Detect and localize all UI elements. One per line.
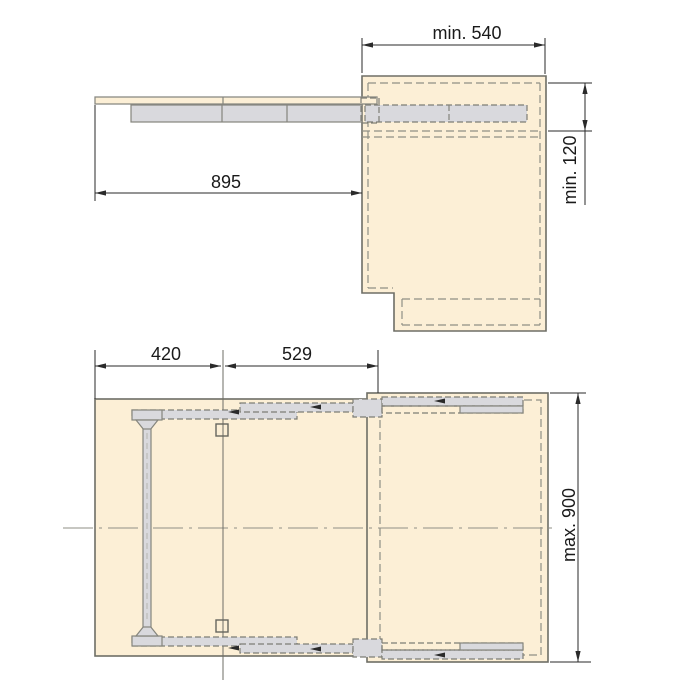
dimension-label-max-extension: max. 900 [559, 488, 579, 562]
cabinet-rail-top [382, 397, 523, 406]
drawing-canvas: min. 540 895 min. 120 [0, 0, 700, 700]
dimension-label-top-clearance: min. 120 [560, 135, 580, 204]
leg-foot-plate-top [132, 410, 162, 420]
slide-connector-top [353, 399, 382, 417]
dimension-max-extension: max. 900 [550, 393, 591, 662]
dimension-top-clearance: min. 120 [548, 83, 592, 205]
dimension-cabinet-depth: min. 540 [362, 23, 545, 74]
dimension-label-leg-offset: 420 [151, 344, 181, 364]
slide-connector-bottom [353, 639, 382, 657]
dimension-leg-offset: 420 [95, 344, 221, 399]
side-view: min. 540 895 min. 120 [95, 23, 592, 331]
slide-mid-bottom [240, 644, 353, 653]
dimension-label-cabinet-depth: min. 540 [432, 23, 501, 43]
slide-rail-hidden [365, 105, 527, 122]
cabinet-rail-top-endcap [460, 406, 523, 413]
technical-drawing-svg: min. 540 895 min. 120 [0, 0, 700, 700]
dimension-label-slide-length: 529 [282, 344, 312, 364]
pullout-tabletop [95, 97, 377, 104]
leg-foot-plate-bottom [132, 636, 162, 646]
slide-mid-top [240, 403, 353, 412]
plan-view: 420 529 max. 900 [63, 344, 591, 680]
dimension-label-pullout-extension: 895 [211, 172, 241, 192]
cabinet-rail-bottom [382, 650, 523, 659]
dimension-slide-length: 529 [225, 344, 378, 393]
slide-rail-extended [131, 105, 362, 122]
cabinet-rail-bottom-endcap [460, 643, 523, 650]
